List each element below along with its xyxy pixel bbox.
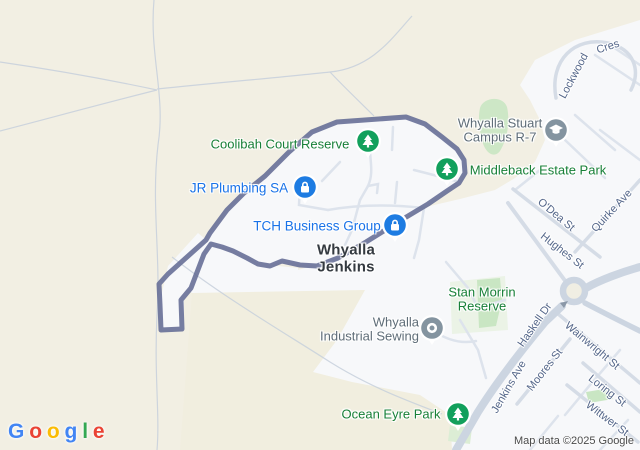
park-label-stan-morrin[interactable]: Stan Morrin Reserve	[448, 286, 515, 315]
business-label-jr-plumbing[interactable]: JR Plumbing SA	[190, 181, 288, 196]
logo-letter: G	[8, 420, 24, 444]
logo-letter: o	[29, 420, 41, 444]
place-label-sewing[interactable]: Whyalla Industrial Sewing	[320, 316, 419, 345]
logo-letter: g	[65, 420, 77, 444]
google-logo[interactable]: G o o g l e	[8, 420, 104, 444]
logo-letter: o	[47, 420, 59, 444]
map-canvas[interactable]: Coolibah Court Reserve Middleback Estate…	[0, 0, 640, 450]
map-attribution: Map data ©2025 Google	[514, 435, 634, 447]
logo-letter: e	[93, 420, 104, 444]
business-label-tch[interactable]: TCH Business Group	[253, 219, 381, 234]
park-label-ocean-eyre[interactable]: Ocean Eyre Park	[342, 407, 441, 422]
park-label-middleback[interactable]: Middleback Estate Park	[470, 163, 607, 178]
park-label-coolibah[interactable]: Coolibah Court Reserve	[211, 137, 350, 152]
place-label-campus[interactable]: Whyalla Stuart Campus R-7	[458, 117, 543, 146]
suburb-label[interactable]: Whyalla Jenkins	[317, 243, 375, 276]
logo-letter: l	[82, 420, 87, 444]
